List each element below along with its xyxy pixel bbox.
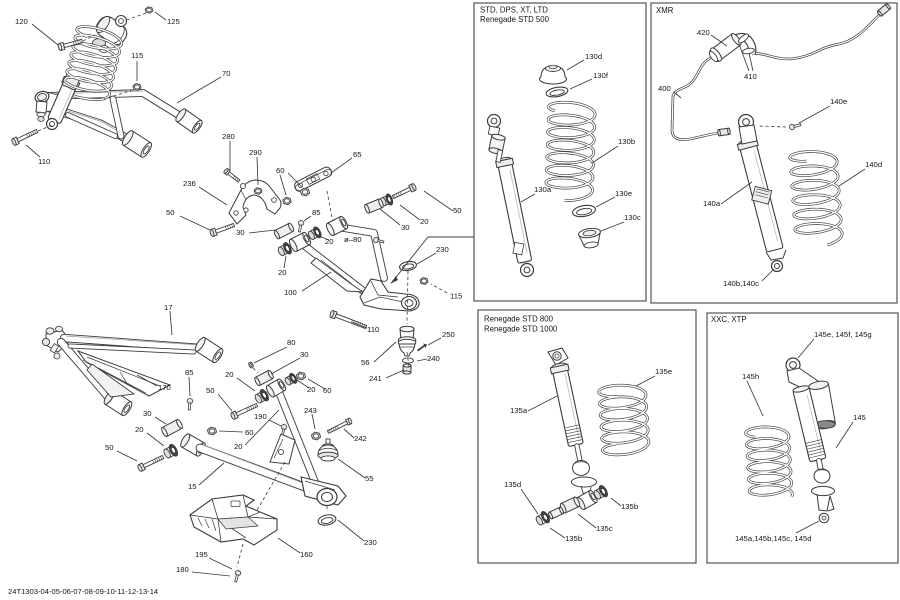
svg-text:STD, DPS, XT, LTD: STD, DPS, XT, LTD [480, 6, 548, 15]
svg-text:80: 80 [287, 338, 296, 347]
svg-text:120: 120 [15, 17, 28, 26]
svg-text:180: 180 [176, 565, 189, 574]
svg-text:85: 85 [185, 368, 194, 377]
svg-text:130a: 130a [534, 185, 552, 194]
svg-text:230: 230 [364, 538, 377, 547]
svg-text:135d: 135d [504, 480, 521, 489]
svg-text:15: 15 [188, 482, 197, 491]
svg-text:50: 50 [206, 386, 215, 395]
svg-text:243: 243 [304, 406, 317, 415]
svg-text:115: 115 [450, 292, 462, 301]
svg-text:135b: 135b [621, 502, 638, 511]
svg-text:145h: 145h [742, 372, 759, 381]
svg-text:20: 20 [307, 385, 316, 394]
svg-text:420: 420 [697, 28, 710, 37]
svg-text:30: 30 [143, 409, 152, 418]
svg-text:85: 85 [312, 208, 321, 217]
svg-text:170: 170 [158, 383, 171, 392]
svg-text:24T1303-04-05-06-07-08-09-10-1: 24T1303-04-05-06-07-08-09-10-11-12-13-14 [8, 587, 158, 596]
svg-text:110: 110 [38, 157, 50, 166]
svg-text:17: 17 [164, 303, 173, 312]
svg-text:100: 100 [284, 288, 297, 297]
svg-text:130d: 130d [585, 52, 602, 61]
svg-text:20: 20 [278, 268, 287, 277]
svg-text:30: 30 [300, 350, 309, 359]
svg-text:115: 115 [131, 51, 143, 60]
svg-text:50: 50 [453, 206, 462, 215]
svg-text:145e, 145f, 145g: 145e, 145f, 145g [814, 330, 872, 339]
svg-text:140a: 140a [703, 199, 721, 208]
svg-text:Renegade STD 800: Renegade STD 800 [484, 314, 554, 323]
svg-text:130b: 130b [618, 137, 635, 146]
svg-text:290: 290 [249, 148, 262, 157]
svg-text:XXC, XTP: XXC, XTP [711, 315, 747, 324]
svg-text:240: 240 [427, 354, 440, 363]
svg-text:20: 20 [325, 237, 334, 246]
svg-text:242: 242 [354, 434, 367, 443]
svg-text:140d: 140d [865, 160, 882, 169]
svg-text:Renegade STD 500: Renegade STD 500 [480, 15, 550, 24]
svg-text:50: 50 [105, 443, 114, 452]
svg-text:60: 60 [276, 166, 285, 175]
svg-text:20: 20 [225, 370, 234, 379]
svg-text:60: 60 [245, 428, 254, 437]
svg-text:140b,140c: 140b,140c [723, 279, 759, 288]
svg-text:190: 190 [254, 412, 267, 421]
svg-text:130f: 130f [593, 71, 609, 80]
svg-text:140e: 140e [830, 97, 847, 106]
svg-text:195: 195 [195, 550, 208, 559]
svg-text:65: 65 [353, 150, 362, 159]
svg-text:Renegade STD 1000: Renegade STD 1000 [484, 325, 558, 334]
svg-text:60: 60 [323, 386, 332, 395]
svg-text:56: 56 [361, 358, 370, 367]
svg-text:236: 236 [183, 179, 196, 188]
svg-text:130e: 130e [615, 189, 632, 198]
svg-text:135e: 135e [655, 367, 672, 376]
svg-text:280: 280 [222, 132, 235, 141]
svg-text:410: 410 [744, 72, 757, 81]
svg-text:55: 55 [365, 474, 374, 483]
svg-text:145a,145b,145c, 145d: 145a,145b,145c, 145d [735, 534, 812, 543]
svg-text:130c: 130c [624, 213, 641, 222]
svg-text:135c: 135c [596, 524, 613, 533]
svg-text:145: 145 [853, 413, 866, 422]
svg-text:160: 160 [300, 550, 313, 559]
svg-text:230: 230 [436, 245, 449, 254]
svg-text:250: 250 [442, 330, 455, 339]
svg-text:70: 70 [222, 69, 231, 78]
svg-text:20: 20 [234, 442, 243, 451]
svg-text:125: 125 [167, 17, 180, 26]
svg-text:30: 30 [401, 223, 410, 232]
svg-text:135a: 135a [510, 406, 528, 415]
svg-text:30: 30 [236, 228, 245, 237]
svg-text:50: 50 [166, 208, 175, 217]
svg-text:20: 20 [135, 425, 144, 434]
svg-text:ø–80: ø–80 [344, 235, 362, 244]
svg-text:241: 241 [369, 374, 382, 383]
svg-text:400: 400 [658, 84, 671, 93]
svg-text:135b: 135b [565, 534, 582, 543]
svg-text:20: 20 [420, 217, 429, 226]
svg-text:110: 110 [367, 325, 379, 334]
svg-text:XMR: XMR [656, 6, 674, 15]
